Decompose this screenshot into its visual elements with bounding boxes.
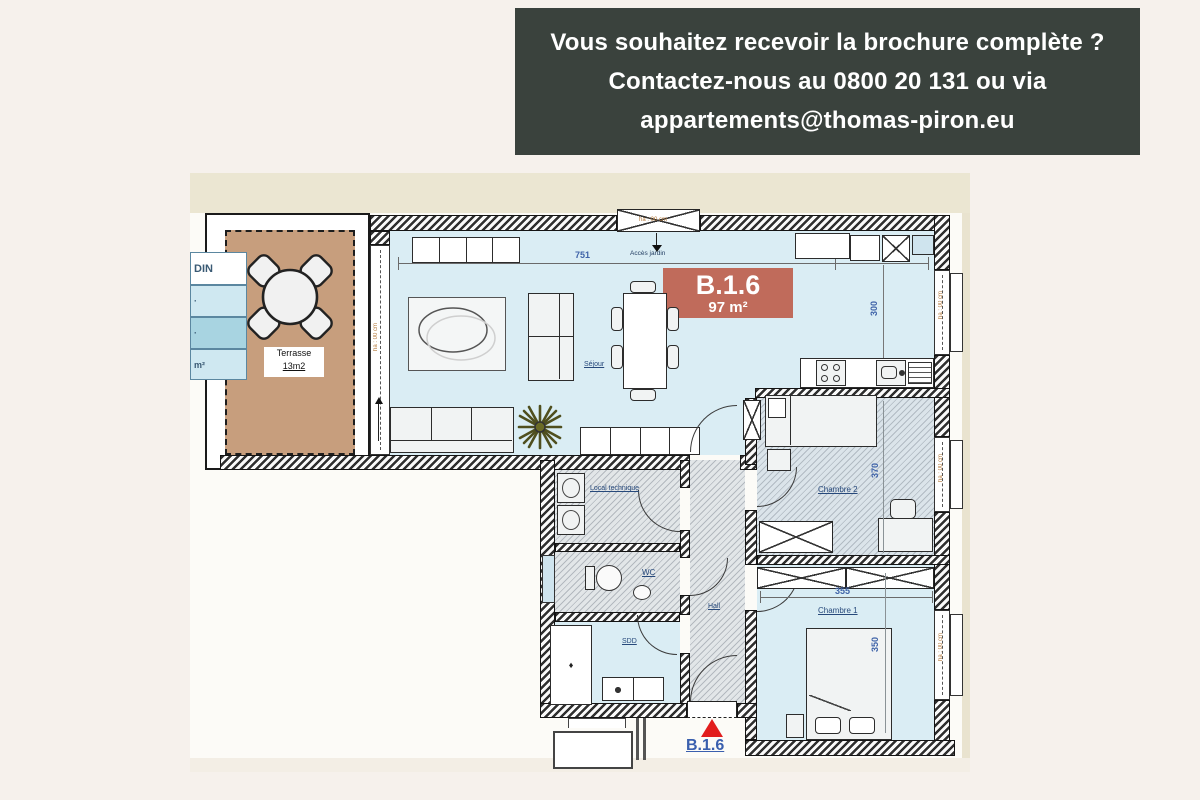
dining-chair-4	[667, 345, 679, 369]
duct-shaft	[743, 400, 761, 440]
wc-window	[542, 555, 555, 603]
kitchen-counter-top	[412, 237, 520, 263]
chambre1-window-height: ha : 00 cm	[938, 633, 944, 661]
shower: ♦	[550, 625, 592, 705]
plant-icon	[516, 403, 564, 451]
chambre1-closet-left	[757, 567, 846, 589]
kitchen-window-sill	[950, 273, 963, 352]
sdd-label: SDD	[622, 638, 637, 646]
plan-top-margin	[190, 173, 970, 213]
wall-sejour-left-corner	[370, 231, 390, 245]
dim-kitchen-depth: 300	[870, 301, 879, 316]
kitchen-cabinet-a	[795, 233, 850, 259]
unit-area: 97 m²	[663, 299, 793, 316]
neighbour-fragment-counter	[568, 718, 626, 728]
wall-chambre-divider	[757, 555, 950, 565]
wall-top-left	[370, 215, 617, 231]
legend-row-3: m²	[190, 349, 247, 380]
neighbour-fragment-room	[553, 731, 633, 769]
wc-label: WC	[642, 569, 655, 577]
terrace-name: Terrasse	[277, 348, 312, 358]
entrance-opening	[687, 701, 737, 718]
brochure-banner: Vous souhaitez recevoir la brochure comp…	[515, 8, 1140, 155]
kitchen-divider-line	[883, 265, 884, 358]
unit-code: B.1.6	[663, 271, 793, 299]
kitchen-window-height: ha : 00 cm	[938, 291, 944, 319]
wall-sejour-bottom	[220, 455, 690, 470]
dim-chambre1-depth: 350	[871, 637, 880, 652]
wall-top-right	[700, 215, 950, 231]
garden-door-height: ha : 00 cm	[639, 217, 667, 223]
sideboard	[580, 427, 700, 455]
wall-hall-left-a	[680, 460, 690, 488]
terrace-table-icon	[240, 245, 340, 345]
banner-line-2: Contactez-nous au 0800 20 131 ou via	[608, 62, 1046, 101]
wall-bottom-wet	[540, 703, 687, 718]
dim-tick-c1-right	[932, 591, 933, 603]
chambre1-closet-right	[846, 567, 934, 589]
sejour-window-height: ha : 00 cm	[373, 323, 379, 351]
legend-row-3-text: m²	[194, 360, 205, 370]
kitchen-cabinet-c	[912, 235, 934, 255]
window-arrow-line	[378, 403, 379, 441]
dim-line-chambre1	[760, 597, 932, 598]
sejour-label: Séjour	[584, 361, 604, 369]
chambre1-label: Chambre 1	[818, 607, 858, 615]
stove	[816, 360, 846, 386]
banner-line-1: Vous souhaitez recevoir la brochure comp…	[550, 23, 1104, 62]
dining-chair-1	[611, 307, 623, 331]
wall-chambre1-bottom	[745, 740, 955, 756]
dining-table	[623, 293, 667, 389]
rug	[408, 297, 506, 371]
kitchen-drainer	[908, 362, 932, 384]
chambre2-chair	[890, 499, 916, 519]
chambre2-label: Chambre 2	[818, 486, 858, 494]
banner-line-3: appartements@thomas-piron.eu	[640, 101, 1014, 140]
floor-plan: Terrasse 13m2 DIN · · m² ha : 00 cm 420	[190, 173, 970, 772]
legend-row-2: ·	[190, 317, 247, 349]
chambre2-desk	[878, 518, 933, 552]
legend-header: DIN	[190, 252, 247, 285]
legend-row-2-text: ·	[194, 328, 197, 338]
chambre2-closet	[759, 521, 833, 553]
kitchen-closet	[882, 235, 910, 262]
wall-lt-wc	[555, 543, 680, 552]
loveseat	[528, 293, 574, 381]
toilet-tank	[585, 566, 595, 590]
kitchen-sink	[876, 360, 906, 386]
sofa	[390, 407, 514, 453]
dining-chair-6	[630, 389, 656, 401]
wall-hall-left-c	[680, 595, 690, 615]
entrance-unit-code: B.1.6	[686, 737, 724, 755]
sdd-vanity	[602, 677, 664, 701]
dim-sejour-width: 751	[575, 251, 590, 260]
kitchen-cabinet-b	[850, 235, 880, 261]
window-arrow-head	[375, 397, 383, 404]
chambre2-window-sill	[950, 440, 963, 509]
unit-tag: B.1.6 97 m²	[663, 268, 793, 318]
washer-1	[557, 473, 585, 503]
wall-bottom-stub	[737, 703, 757, 718]
wall-hall-left-b	[680, 530, 690, 558]
chambre1-dim-line	[885, 573, 886, 733]
chambre1-window-sill	[950, 614, 963, 696]
entrance-arrow	[701, 719, 723, 737]
dim-line-top	[398, 263, 928, 264]
legend-row-1: ·	[190, 285, 247, 317]
terrace-area: 13m2	[283, 361, 306, 371]
neighbour-fragment-bar-2	[643, 718, 646, 760]
dim-tick-left	[398, 257, 399, 270]
chambre2-dim-line	[883, 401, 884, 553]
hall-label: Hall	[708, 603, 720, 611]
dim-chambre2-depth: 370	[871, 463, 880, 478]
terrace-label: Terrasse 13m2	[264, 347, 324, 377]
neighbour-fragment-bar-1	[636, 718, 639, 760]
wall-hall-right-b	[745, 510, 757, 565]
wc-sink	[633, 585, 651, 600]
chambre2-bed	[765, 395, 877, 447]
plan-right-margin	[962, 213, 970, 758]
dining-chair-2	[611, 345, 623, 369]
chambre1-bench	[786, 714, 804, 738]
wall-hall-right-c	[745, 610, 757, 740]
chambre2-nightstand	[767, 449, 791, 471]
toilet-bowl	[596, 565, 622, 591]
chambre2-window-height: ha : 00 cm	[938, 454, 944, 482]
wall-right-1	[934, 215, 950, 270]
dining-chair-3	[667, 307, 679, 331]
acces-jardin-label: Accès jardin	[630, 250, 665, 257]
dining-chair-5	[630, 281, 656, 293]
dim-tick-c1-left	[760, 591, 761, 603]
legend-row-1-text: ·	[194, 296, 197, 306]
shower-mark: ♦	[569, 660, 574, 670]
dim-tick-right	[928, 257, 929, 270]
legend-header-text: DIN	[194, 263, 213, 275]
washer-2	[557, 505, 585, 535]
dim-chambre1-width: 355	[835, 587, 850, 596]
local-technique-label: Local technique	[590, 485, 639, 493]
